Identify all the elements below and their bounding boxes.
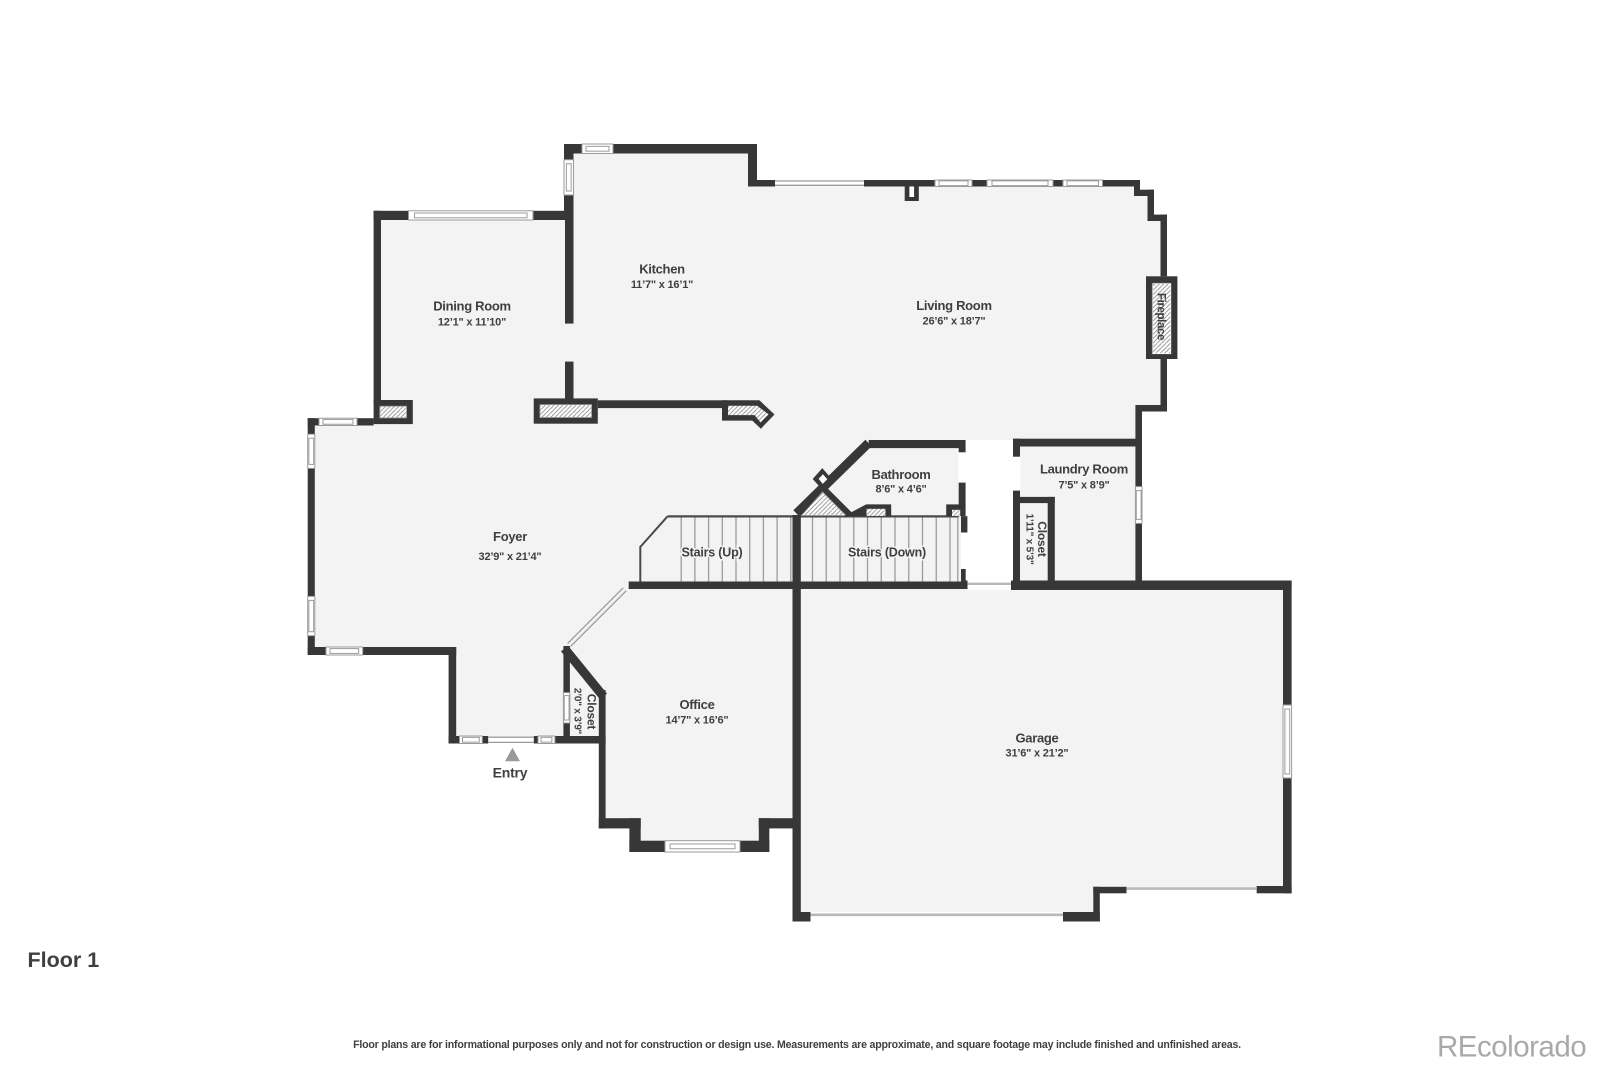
svg-text:Bathroom: Bathroom (872, 467, 931, 482)
svg-text:Kitchen: Kitchen (639, 262, 685, 277)
svg-text:2’0" x 3’9": 2’0" x 3’9" (572, 688, 583, 735)
svg-text:Closet: Closet (585, 694, 599, 730)
svg-text:Stairs (Up): Stairs (Up) (681, 546, 742, 560)
svg-text:14’7" x 16’6": 14’7" x 16’6" (666, 715, 729, 727)
svg-text:1’11" x 5’3": 1’11" x 5’3" (1024, 513, 1035, 564)
svg-text:Floor plans are for informatio: Floor plans are for informational purpos… (353, 1039, 1241, 1051)
svg-text:Closet: Closet (1035, 521, 1049, 557)
svg-text:26’6" x 18’7": 26’6" x 18’7" (923, 316, 986, 328)
svg-text:Floor 1: Floor 1 (28, 948, 100, 972)
svg-text:Laundry Room: Laundry Room (1040, 462, 1128, 477)
svg-text:Living Room: Living Room (916, 298, 991, 313)
svg-text:Entry: Entry (493, 765, 528, 781)
svg-text:Office: Office (679, 697, 714, 712)
svg-text:Garage: Garage (1015, 731, 1058, 746)
svg-text:Stairs (Down): Stairs (Down) (848, 546, 926, 560)
svg-text:32’9" x 21’4": 32’9" x 21’4" (479, 551, 542, 563)
svg-text:Dining Room: Dining Room (433, 299, 511, 314)
svg-text:11’7" x 16’1": 11’7" x 16’1" (631, 279, 693, 291)
svg-text:8’6" x 4’6": 8’6" x 4’6" (875, 484, 926, 496)
svg-text:7’5" x 8’9": 7’5" x 8’9" (1058, 480, 1109, 492)
svg-text:Fireplace: Fireplace (1155, 293, 1167, 340)
svg-text:12’1" x 11’10": 12’1" x 11’10" (438, 317, 506, 329)
svg-text:REcolorado: REcolorado (1437, 1031, 1586, 1064)
svg-text:Foyer: Foyer (493, 529, 527, 544)
svg-text:31’6" x 21’2": 31’6" x 21’2" (1006, 748, 1069, 760)
